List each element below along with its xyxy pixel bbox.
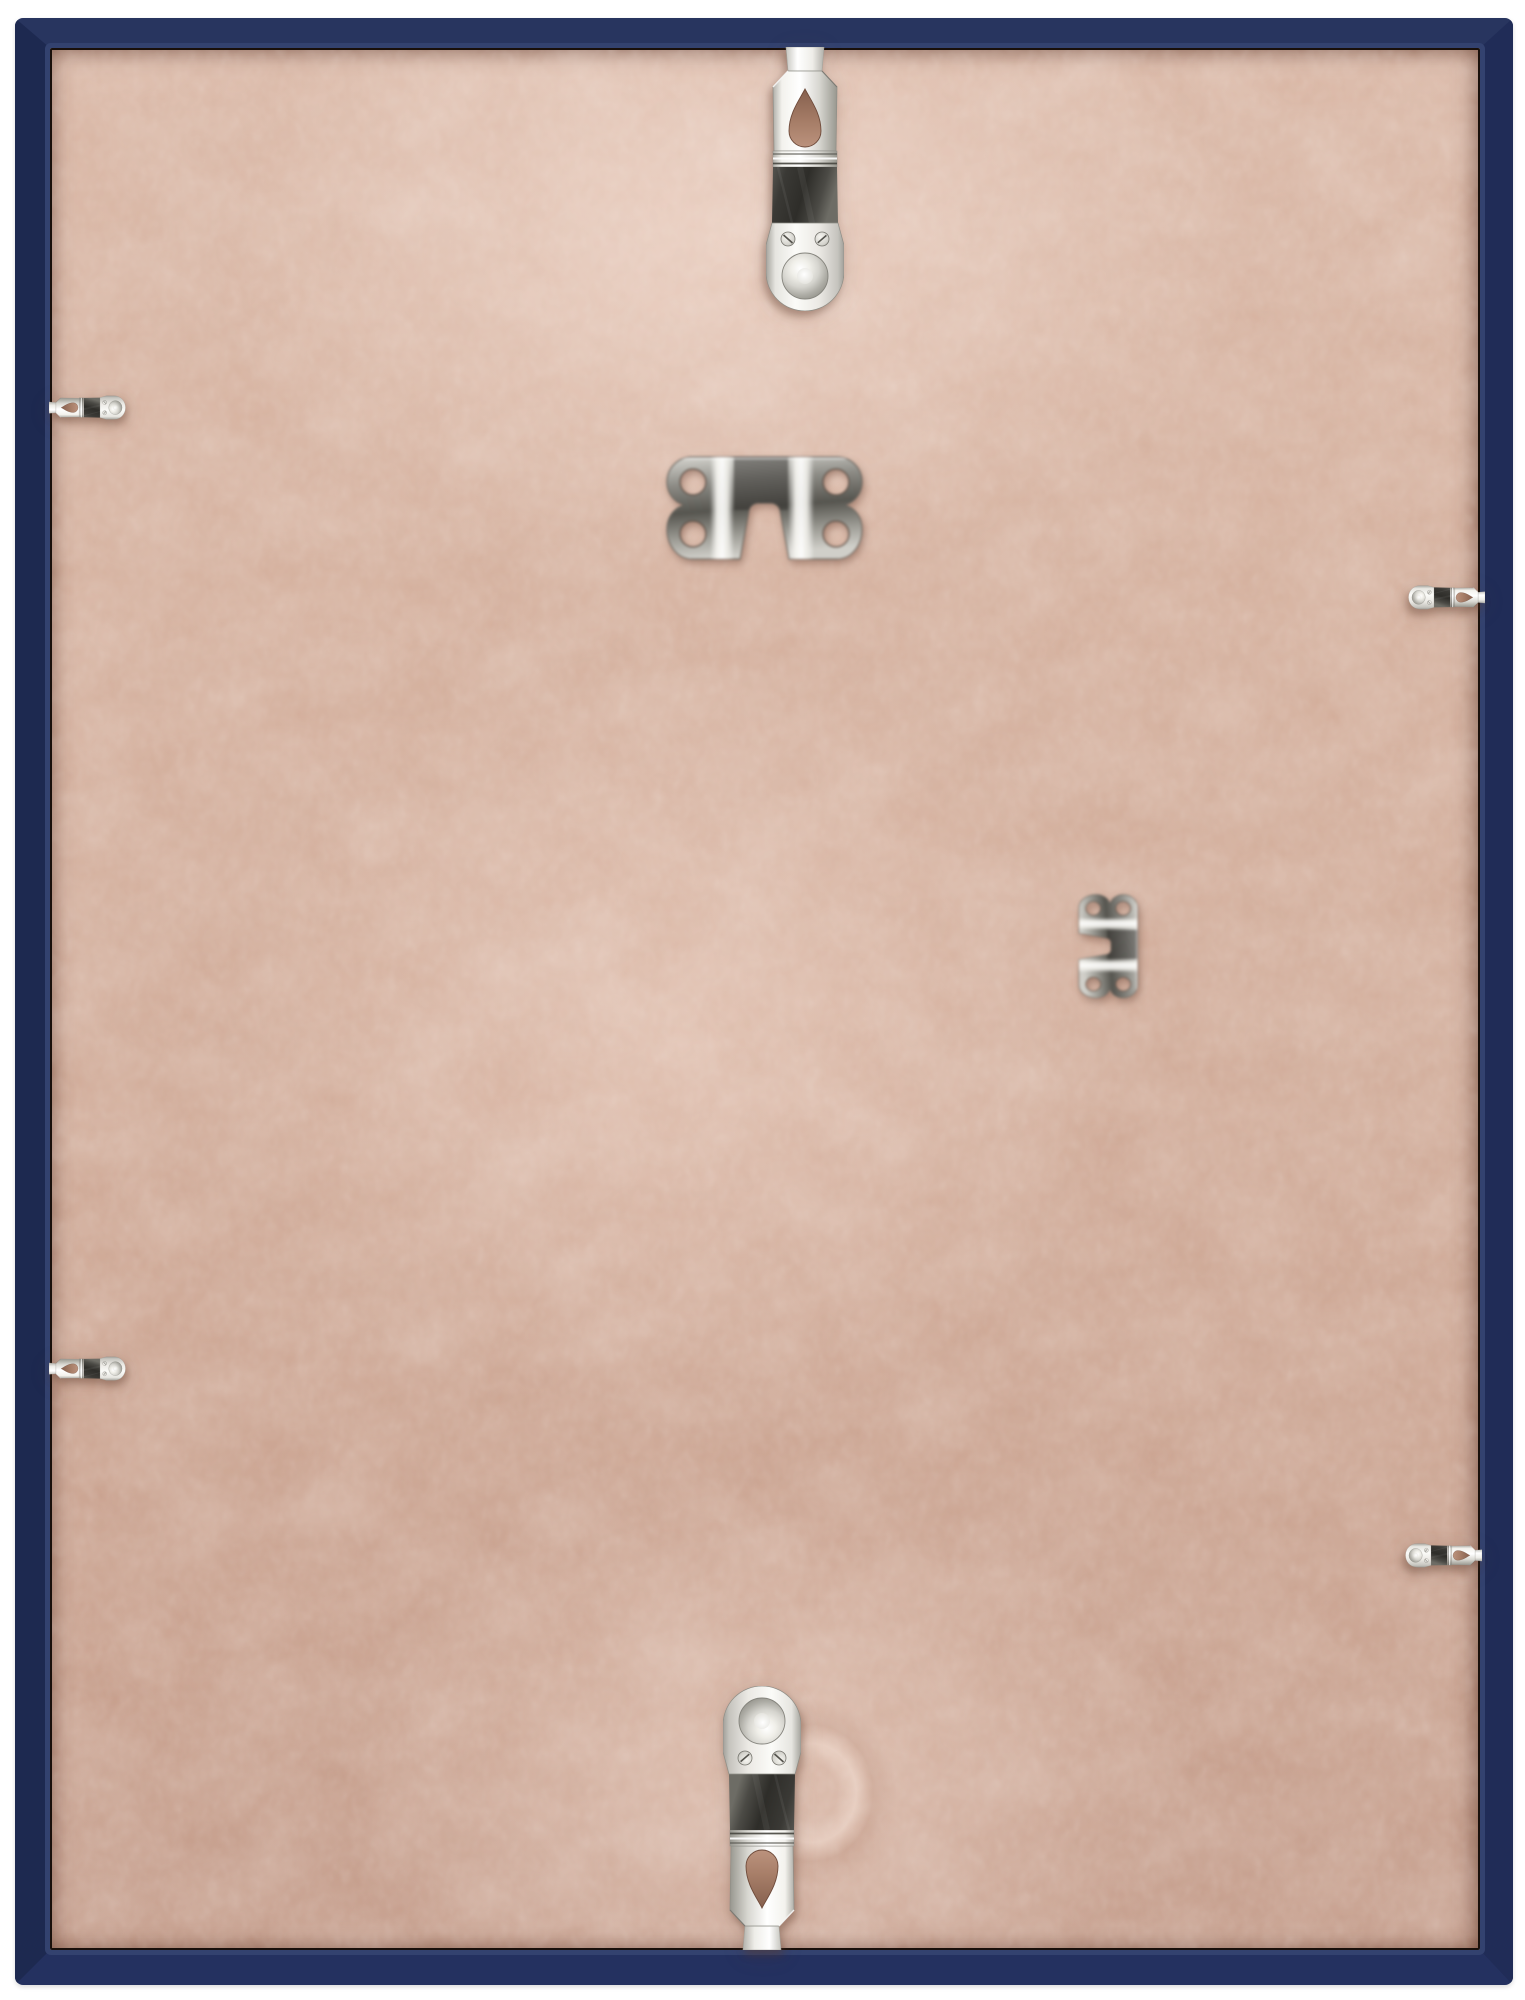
sawtooth-hanger-middle-right <box>1097 892 1215 1089</box>
spring-clip-top-center <box>766 47 844 311</box>
spring-clip-upper-right <box>1226 462 1485 542</box>
photo-background <box>0 0 1525 2000</box>
spring-clip-lower-right <box>1223 1420 1482 1500</box>
spring-clip-lower-left <box>49 1424 308 1504</box>
mdf-backing-board <box>50 48 1480 1950</box>
frame-back <box>15 18 1513 1985</box>
spring-clip-bottom-center <box>723 1686 801 1950</box>
sawtooth-hanger-upper-center <box>662 452 867 565</box>
board-fiber-texture <box>52 50 1478 1948</box>
spring-clip-upper-left <box>49 463 308 543</box>
board-mottle-texture <box>52 50 1478 1948</box>
